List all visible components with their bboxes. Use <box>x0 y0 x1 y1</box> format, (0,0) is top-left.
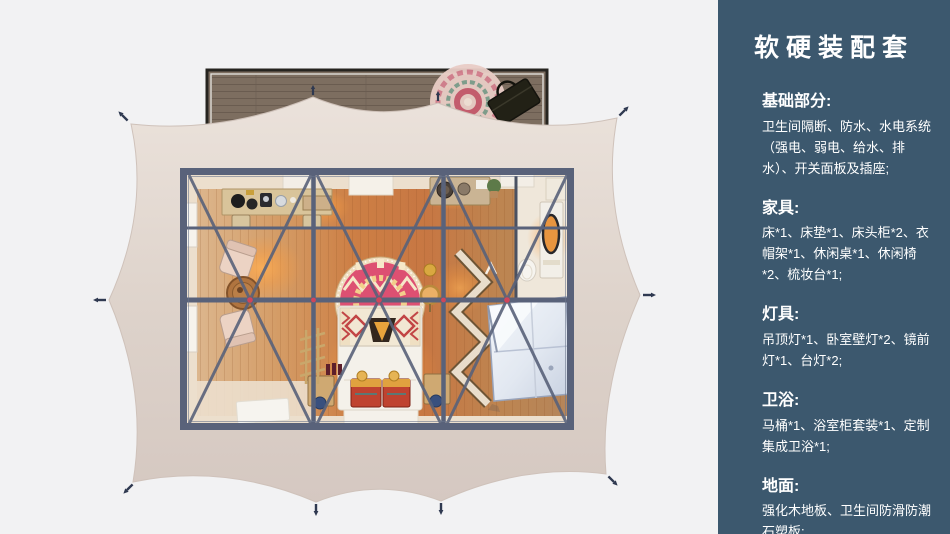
floor-mat <box>236 398 289 424</box>
wall-shelf <box>303 196 331 210</box>
ceiling-vent <box>349 175 393 195</box>
section-body: 强化木地板、卫生间防滑防潮石塑板; <box>762 500 934 534</box>
section-heading: 地面: <box>762 476 934 498</box>
hat-icon <box>231 194 245 208</box>
window <box>186 306 197 352</box>
section-furniture: 家具: 床*1、床垫*1、床头柜*2、衣帽架*1、休闲桌*1、休闲椅*2、梳妆台… <box>762 198 934 286</box>
room <box>184 172 572 429</box>
section-bathroom: 卫浴: 马桶*1、浴室柜套装*1、定制集成卫浴*1; <box>762 390 934 457</box>
section-lighting: 灯具: 吊顶灯*1、卧室壁灯*2、镜前灯*1、台灯*2; <box>762 304 934 371</box>
sidebar-title: 软硬装配套 <box>734 28 934 64</box>
window <box>186 203 197 247</box>
tent-floorplan-render <box>0 0 718 534</box>
section-heading: 卫浴: <box>762 390 934 412</box>
floorplan-panel <box>0 0 718 534</box>
spec-sidebar: 软硬装配套 基础部分: 卫生间隔断、防水、水电系统（强电、弱电、给水、排水）、开… <box>718 0 950 534</box>
section-body: 马桶*1、浴室柜套装*1、定制集成卫浴*1; <box>762 415 934 457</box>
section-heading: 基础部分: <box>762 91 934 113</box>
section-body: 卫生间隔断、防水、水电系统（强电、弱电、给水、排水）、开关面板及插座; <box>762 116 934 179</box>
section-body: 床*1、床垫*1、床头柜*2、衣帽架*1、休闲桌*1、休闲椅*2、梳妆台*1; <box>762 222 934 285</box>
hat-icon <box>247 199 258 210</box>
kettle-icon <box>276 196 287 207</box>
section-heading: 灯具: <box>762 304 934 326</box>
section-body: 吊顶灯*1、卧室壁灯*2、镜前灯*1、台灯*2; <box>762 329 934 371</box>
section-flooring: 地面: 强化木地板、卫生间防滑防潮石塑板; <box>762 476 934 534</box>
vanity-table <box>540 202 563 278</box>
bottle-icon <box>326 363 342 375</box>
section-heading: 家具: <box>762 198 934 220</box>
bedside-table <box>424 374 450 407</box>
section-basics: 基础部分: 卫生间隔断、防水、水电系统（强电、弱电、给水、排水）、开关面板及插座… <box>762 91 934 179</box>
